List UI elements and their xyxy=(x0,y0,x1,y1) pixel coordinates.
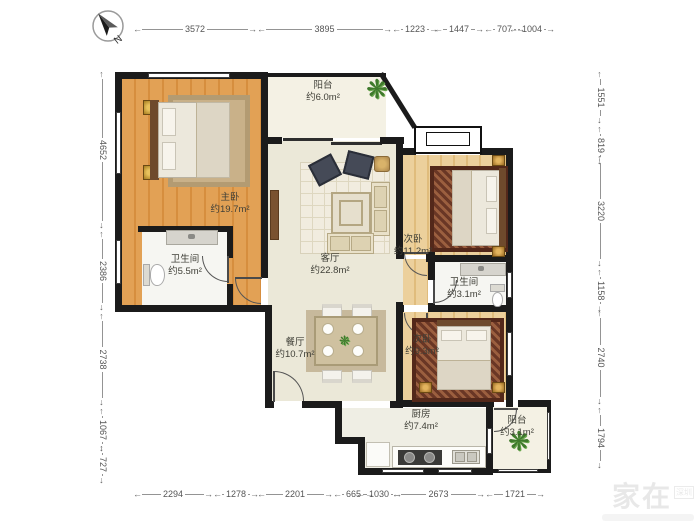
room-label-balcony-top: 阳台约6.0m² xyxy=(290,80,356,105)
door-leaf xyxy=(227,256,229,283)
room-label-master: 主卧约19.7m² xyxy=(197,192,263,217)
room-label-kitchen: 厨房约7.4m² xyxy=(388,409,454,434)
fridge xyxy=(366,442,390,467)
room-label-dining: 餐厅约10.7m² xyxy=(262,337,328,362)
toilet xyxy=(143,264,150,286)
watermark-region: 深圳 xyxy=(674,486,694,499)
bedside-lamp xyxy=(492,246,505,257)
loveseat-cushion xyxy=(330,236,350,251)
floorplan-canvas: N xyxy=(0,0,700,525)
bedside-lamp xyxy=(492,155,505,166)
dimension-line-left: 4652 2386 2738 1067 727 xyxy=(96,70,110,469)
room-label-bed2: 次卧约11.2m² xyxy=(380,234,446,259)
window xyxy=(507,332,512,376)
sink-basin xyxy=(467,452,477,462)
window xyxy=(116,112,121,174)
pillow xyxy=(162,142,176,170)
wall xyxy=(261,72,268,278)
wall xyxy=(227,284,233,312)
compass-north-label: N xyxy=(112,33,124,46)
window xyxy=(116,240,121,284)
faucet xyxy=(188,234,195,239)
blanket xyxy=(196,102,230,178)
side-table xyxy=(374,156,390,172)
wall xyxy=(390,401,403,408)
wall xyxy=(265,401,274,408)
room-label-bed3: 次卧约9.3m² xyxy=(389,334,455,359)
window xyxy=(507,272,512,298)
burner xyxy=(404,452,415,463)
watermark-tagline xyxy=(602,514,694,521)
wall xyxy=(227,226,233,258)
wall xyxy=(265,137,282,144)
window xyxy=(438,469,472,473)
wall xyxy=(358,468,493,475)
wall xyxy=(302,401,335,408)
plate xyxy=(352,345,364,357)
watermark-brand: 家在 xyxy=(612,483,672,511)
burner xyxy=(424,452,435,463)
plant-icon: ❋ xyxy=(339,334,350,347)
pillow xyxy=(162,108,176,136)
bed-headboard xyxy=(499,168,506,248)
entry-door-leaf xyxy=(273,371,275,402)
dining-chair xyxy=(322,370,342,383)
room-label-balcony-bottom: 阳台约3.1m² xyxy=(484,415,550,440)
wall xyxy=(518,400,550,407)
loveseat-cushion xyxy=(351,236,371,251)
pillow xyxy=(486,208,497,234)
kitchen-floor-step xyxy=(342,408,365,438)
bedside-lamp xyxy=(419,382,432,393)
sofa-cushion xyxy=(374,186,387,208)
door-leaf xyxy=(235,277,262,279)
wall xyxy=(115,305,271,312)
coffee-table-inner xyxy=(339,200,363,226)
sofa-cushion xyxy=(374,210,387,232)
bedside-lamp xyxy=(492,382,505,393)
window xyxy=(382,469,424,473)
plate xyxy=(352,323,364,335)
watermark: 家在 深圳 xyxy=(602,483,694,523)
dimension-line-top: 3572 3895 1223 1447 707 1004 xyxy=(133,22,545,36)
dining-chair xyxy=(352,370,372,383)
tv-console xyxy=(270,190,279,240)
bay-window-inner xyxy=(426,132,470,146)
faucet xyxy=(478,266,484,271)
plant-icon: ❋ xyxy=(366,76,388,102)
blanket xyxy=(452,170,472,246)
room-label-bath2: 卫生间约3.1m² xyxy=(431,277,497,302)
compass-icon: N xyxy=(86,5,130,51)
window xyxy=(148,73,230,78)
sink-basin xyxy=(455,452,465,462)
pillow xyxy=(466,330,487,341)
window xyxy=(498,469,538,472)
room-label-living: 客厅约22.8m² xyxy=(297,253,363,278)
door-leaf xyxy=(494,408,518,410)
dimension-line-bottom: 2294 1278 2201 665 1030 2673 1721 xyxy=(133,487,545,501)
room-label-bath1: 卫生间约5.5m² xyxy=(152,254,218,279)
sliding-door-panel xyxy=(283,138,333,141)
wall xyxy=(396,305,404,312)
sliding-door-panel xyxy=(331,142,382,145)
blanket xyxy=(437,360,491,390)
dimension-line-right: 1551 819 3220 1158 2740 1794 xyxy=(594,70,608,470)
pillow xyxy=(486,176,497,202)
plate xyxy=(322,323,334,335)
